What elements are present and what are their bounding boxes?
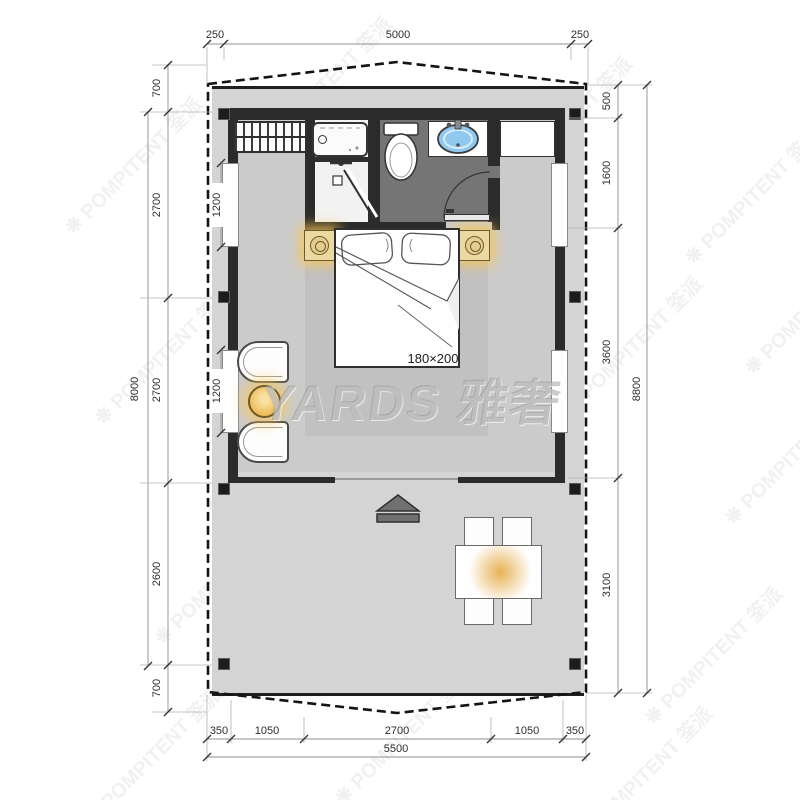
- dim-top-left-overhang: 250: [193, 28, 237, 42]
- dim-left-seg-3: 2700: [150, 368, 164, 412]
- dim-right-seg-1: 500: [600, 79, 614, 123]
- sink-basin: [438, 120, 478, 153]
- dim-bottom-seg-5: 350: [553, 724, 597, 738]
- dim-right-seg-4: 3100: [600, 563, 614, 607]
- dim-left-total: 8000: [128, 367, 142, 411]
- toilet: [384, 123, 418, 180]
- dim-right-seg-3: 3600: [600, 330, 614, 374]
- dim-left-seg-1: 700: [150, 66, 164, 110]
- dim-bottom-seg-3: 2700: [375, 724, 419, 738]
- dim-window-upper: 1200: [210, 183, 224, 227]
- dim-bottom-total: 5500: [374, 742, 418, 756]
- brand-watermark: YARDS 雅奢: [257, 363, 567, 435]
- dim-top-right-overhang: 250: [558, 28, 602, 42]
- bed-size-label: 180×200: [406, 351, 460, 366]
- bathtub-dashes: [320, 128, 360, 151]
- shower-glass-door: [330, 160, 377, 219]
- dim-right-seg-2: 1600: [600, 151, 614, 195]
- dim-left-seg-4: 2600: [150, 552, 164, 596]
- dim-top-span: 5000: [376, 28, 420, 42]
- dim-left-seg-5: 700: [150, 666, 164, 710]
- dim-window-lower: 1200: [210, 369, 224, 413]
- dim-bottom-seg-4: 1050: [505, 724, 549, 738]
- floor-plan-canvas: ❋ POMPITENT 筌派❋ POMPITENT 筌派❋ POMPITENT …: [0, 0, 800, 800]
- dim-right-total: 8800: [630, 367, 644, 411]
- dim-bottom-seg-1: 350: [197, 724, 241, 738]
- dim-left-seg-2: 2700: [150, 183, 164, 227]
- entrance-arrow-icon: [377, 495, 419, 522]
- double-bed: [335, 229, 459, 367]
- bathroom-door-arc: [444, 172, 490, 218]
- dim-bottom-seg-2: 1050: [245, 724, 289, 738]
